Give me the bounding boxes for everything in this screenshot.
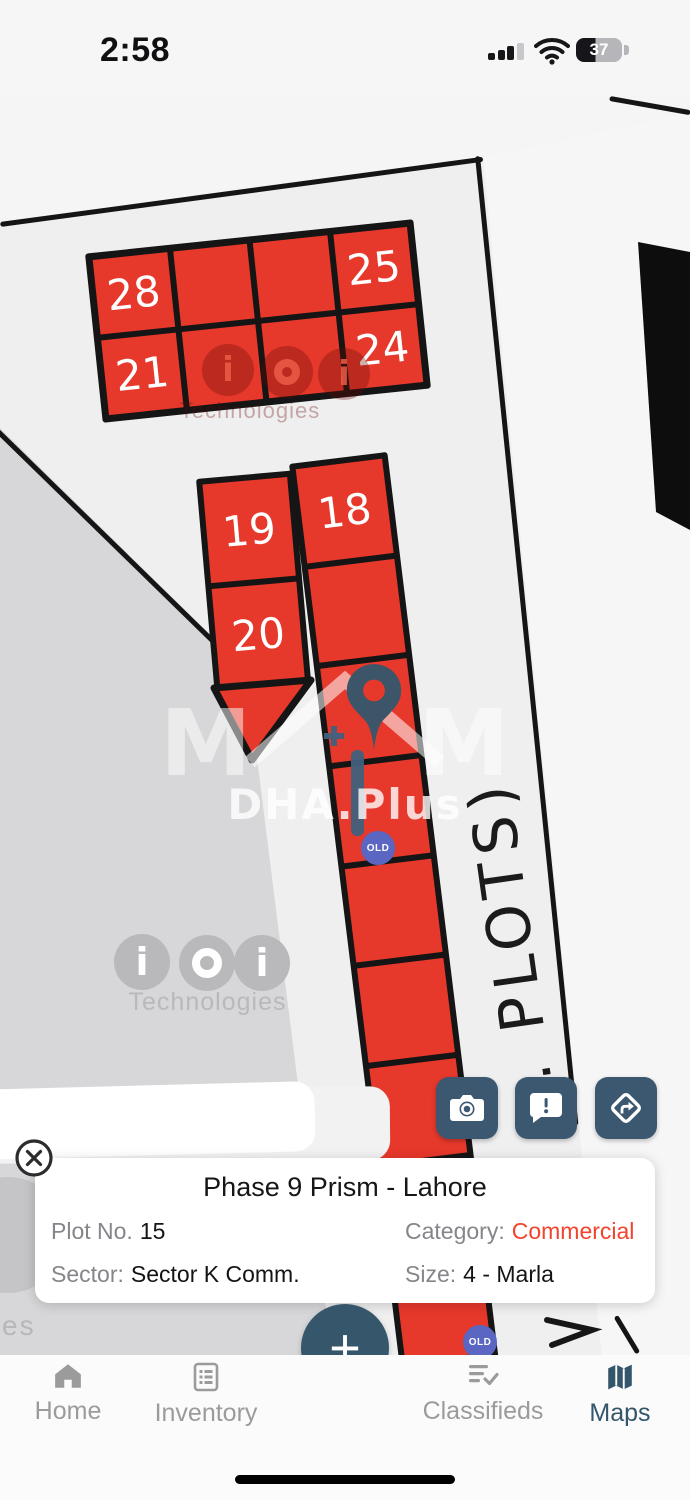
home-icon — [53, 1362, 83, 1390]
plot-left-column-block: 19 20 — [196, 471, 311, 695]
classifieds-icon — [467, 1362, 499, 1390]
road-glyph-zigzag — [540, 1305, 610, 1360]
report-bubble-icon — [529, 1091, 563, 1125]
nav-item-inventory[interactable]: Inventory — [141, 1362, 271, 1428]
watermark-o-icon — [179, 935, 235, 991]
watermark-technologies-label: Technologies — [150, 398, 350, 424]
battery-nub-icon — [624, 45, 629, 55]
nav-label-classifieds: Classifieds — [423, 1397, 544, 1426]
old-plot-badge: OLD — [463, 1325, 497, 1359]
plot-25[interactable]: 25 — [333, 227, 415, 309]
close-icon — [13, 1137, 55, 1179]
camera-icon — [449, 1093, 485, 1123]
sector-value: Sector K Comm. — [131, 1261, 300, 1287]
plot-no-label: Plot No. — [51, 1218, 133, 1244]
category-label: Category: — [405, 1218, 505, 1244]
logo-plus-icon — [322, 724, 346, 748]
sector-field: Sector:Sector K Comm. — [51, 1261, 300, 1288]
plot-no-field: Plot No.15 — [51, 1218, 165, 1245]
plot-no-value: 15 — [140, 1218, 166, 1244]
plot-cell[interactable] — [173, 244, 255, 326]
home-indicator[interactable] — [235, 1475, 455, 1484]
cellular-signal-icon — [488, 42, 528, 60]
size-value: 4 - Marla — [463, 1261, 554, 1287]
inventory-icon — [192, 1362, 220, 1392]
nav-label-maps: Maps — [589, 1399, 650, 1428]
battery-icon: 37 — [576, 38, 622, 62]
directions-button[interactable] — [595, 1077, 657, 1139]
sector-label: Sector: — [51, 1261, 124, 1287]
watermark-i-icon: i — [114, 934, 170, 990]
nav-item-home[interactable]: Home — [3, 1362, 133, 1426]
battery-level: 37 — [590, 40, 609, 60]
watermark-technologies-label: Technologies — [120, 988, 295, 1017]
plot-cell[interactable] — [308, 559, 406, 664]
watermark-i-icon: i — [202, 344, 254, 396]
plot-28[interactable]: 28 — [93, 252, 175, 334]
plot-info-title: Phase 9 Prism - Lahore — [35, 1172, 655, 1203]
nav-item-maps[interactable]: Maps — [555, 1362, 685, 1428]
close-card-button[interactable] — [13, 1137, 55, 1179]
plot-top-block: 28 25 21 24 — [85, 219, 431, 423]
plot-19[interactable]: 19 — [203, 477, 296, 583]
directions-icon — [608, 1090, 644, 1126]
nav-item-classifieds[interactable]: Classifieds — [418, 1362, 548, 1426]
watermark-brand-label: DHA.Plus — [145, 780, 545, 829]
plot-cell[interactable] — [357, 958, 455, 1063]
maps-icon — [605, 1362, 635, 1392]
plot-cell[interactable] — [253, 235, 335, 317]
watermark-text-tail: es — [2, 1310, 36, 1342]
watermark-o-icon — [261, 346, 313, 398]
nav-label-inventory: Inventory — [155, 1399, 258, 1428]
plot-cell[interactable] — [345, 858, 443, 963]
wifi-icon — [534, 37, 570, 65]
old-plot-badge: OLD — [361, 831, 395, 865]
status-time: 2:58 — [90, 31, 180, 70]
category-field: Category:Commercial — [405, 1218, 634, 1245]
watermark-i-icon: i — [234, 935, 290, 991]
category-value: Commercial — [512, 1218, 635, 1244]
report-button[interactable] — [515, 1077, 577, 1139]
size-label: Size: — [405, 1261, 456, 1287]
watermark-i-icon: i — [318, 348, 370, 400]
map-pin-icon — [345, 662, 403, 766]
size-field: Size:4 - Marla — [405, 1261, 554, 1288]
nav-label-home: Home — [35, 1397, 102, 1426]
camera-button[interactable] — [436, 1077, 498, 1139]
plot-18[interactable]: 18 — [296, 459, 394, 564]
plot-info-card: Phase 9 Prism - Lahore Plot No.15 Catego… — [35, 1158, 655, 1303]
